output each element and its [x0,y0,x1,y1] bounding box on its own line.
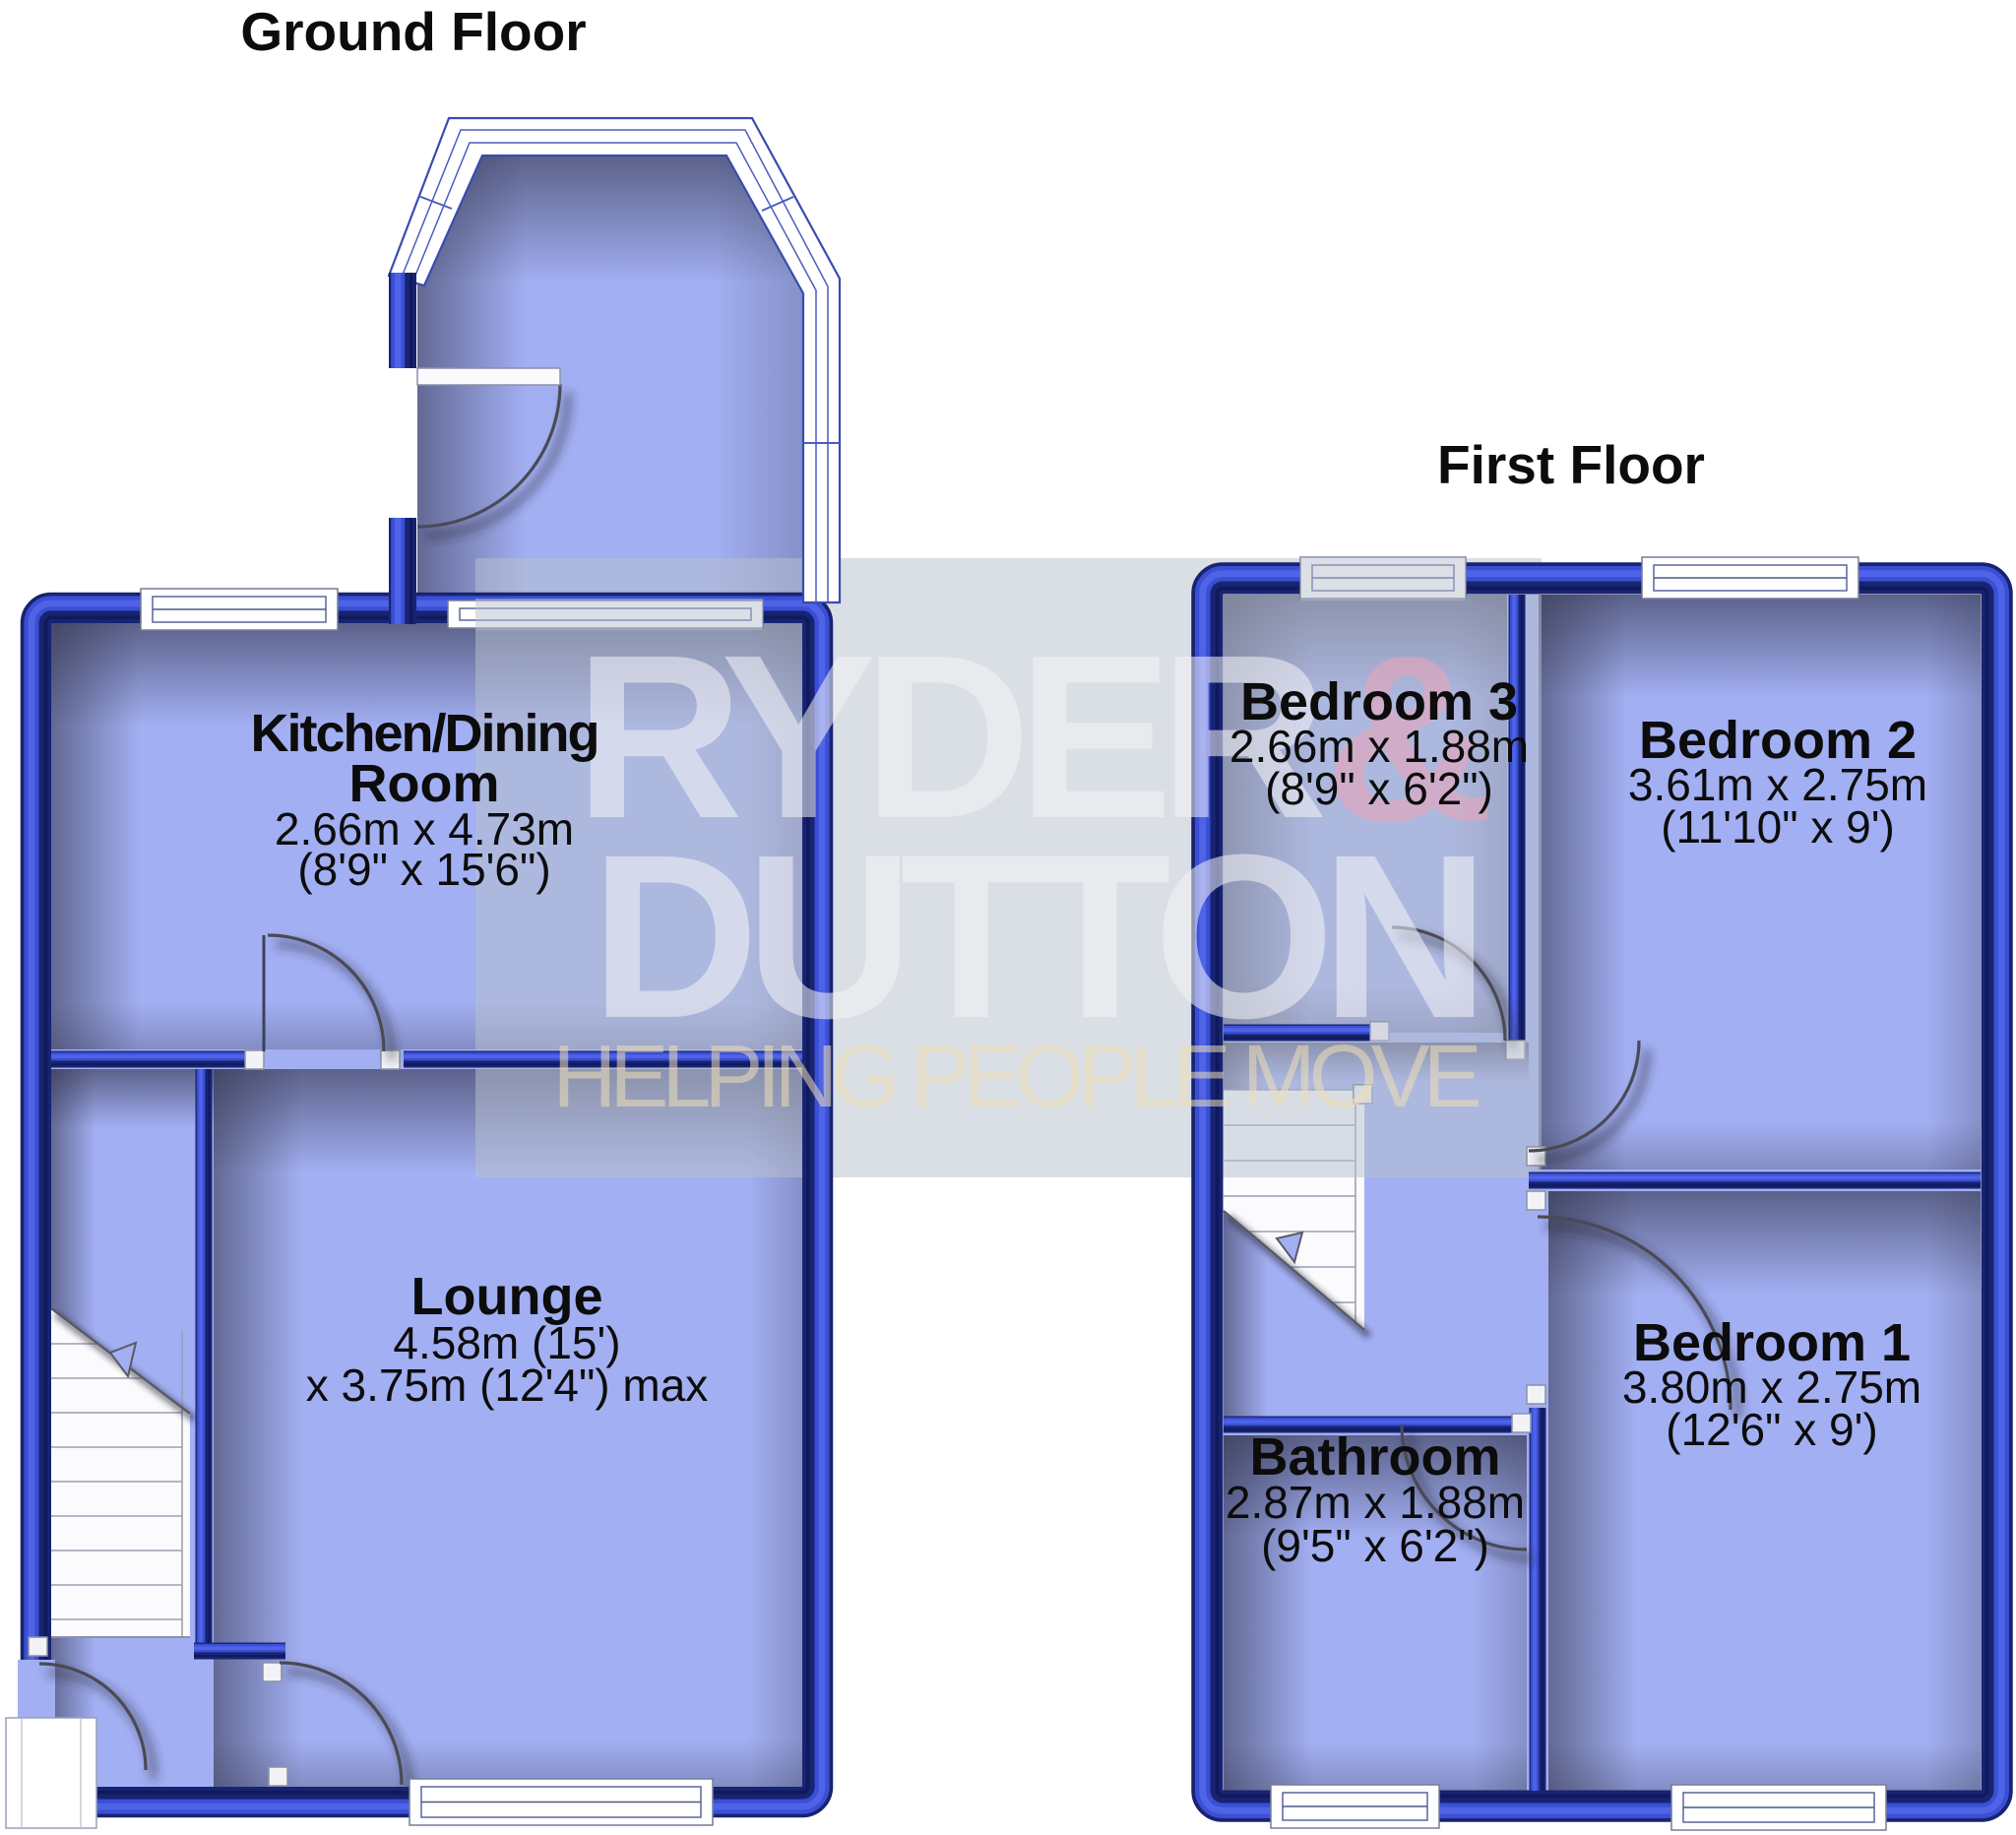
svg-text:(8'9" x 15'6"): (8'9" x 15'6") [297,844,550,895]
svg-text:(8'9" x 6'2"): (8'9" x 6'2") [1265,763,1493,814]
svg-text:(9'5" x 6'2"): (9'5" x 6'2") [1261,1520,1489,1571]
svg-text:(11'10" x 9'): (11'10" x 9') [1661,801,1895,853]
svg-text:HELPING PEOPLE MOVE: HELPING PEOPLE MOVE [552,1028,1479,1126]
svg-text:(12'6" x 9'): (12'6" x 9') [1666,1404,1877,1455]
svg-text:x 3.75m (12'4") max: x 3.75m (12'4") max [306,1360,709,1411]
svg-text:Ground Floor: Ground Floor [240,1,586,62]
svg-text:First Floor: First Floor [1437,434,1705,495]
